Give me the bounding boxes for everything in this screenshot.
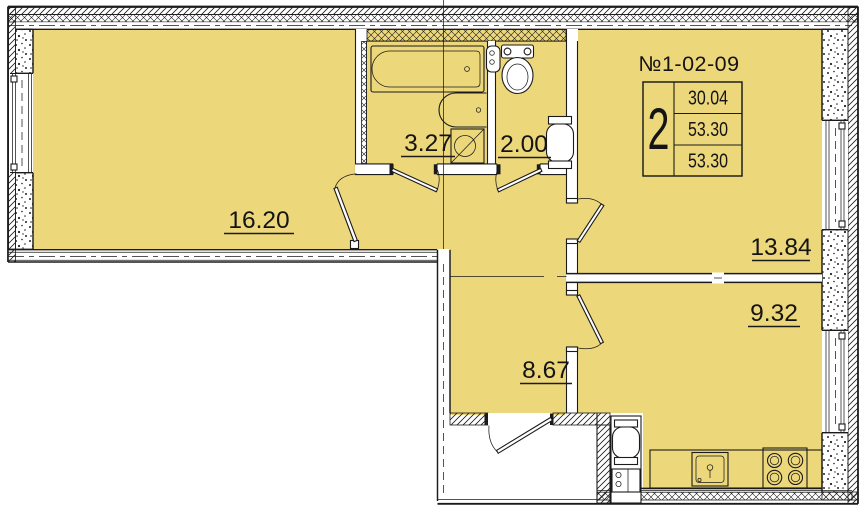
wall-bathroom-left: [355, 29, 367, 175]
window-kitchen-right: [822, 331, 848, 433]
table-total-area-reduced: 53.30: [688, 151, 728, 173]
unit-number: №1-02-09: [638, 52, 739, 76]
room-area-label-wc: 2.00: [500, 131, 548, 158]
room-area-label-bedroom: 13.84: [750, 234, 811, 261]
floor-plan: 16.20 3.27 2.00 13.84 9.32 8.67 №1-02-09…: [0, 0, 860, 512]
toilet-icon: [502, 45, 534, 94]
corner-sink-icon: [487, 46, 501, 72]
room-area-label-kitchen-living: 9.32: [750, 300, 798, 327]
wall-living-bottom: [8, 249, 450, 262]
wall-bath-wc-bottom: [355, 164, 578, 176]
gas-heater-icon: [611, 416, 641, 503]
room-area-label-bathroom: 3.27: [404, 130, 452, 157]
wall-bedroom-kitchen: [566, 273, 822, 284]
wall-top: [8, 7, 858, 30]
room-area-label-living: 16.20: [228, 207, 289, 234]
floor-plan-canvas: 16.20 3.27 2.00 13.84 9.32 8.67 №1-02-09…: [0, 0, 860, 512]
room-area-label-hallway: 8.67: [522, 357, 570, 384]
table-rooms-count: 2: [648, 97, 670, 162]
unit-info: №1-02-09 2 30.04 53.30 53.30: [638, 52, 742, 176]
window-living-left: [9, 74, 33, 173]
water-heater-icon: [547, 117, 574, 169]
wall-bathroom-top-insulation: [367, 30, 566, 42]
table-living-area: 30.04: [688, 88, 728, 110]
table-total-area: 53.30: [688, 119, 728, 141]
unit-info-table: 2 30.04 53.30 53.30: [643, 82, 742, 176]
window-bedroom-right: [822, 121, 848, 230]
